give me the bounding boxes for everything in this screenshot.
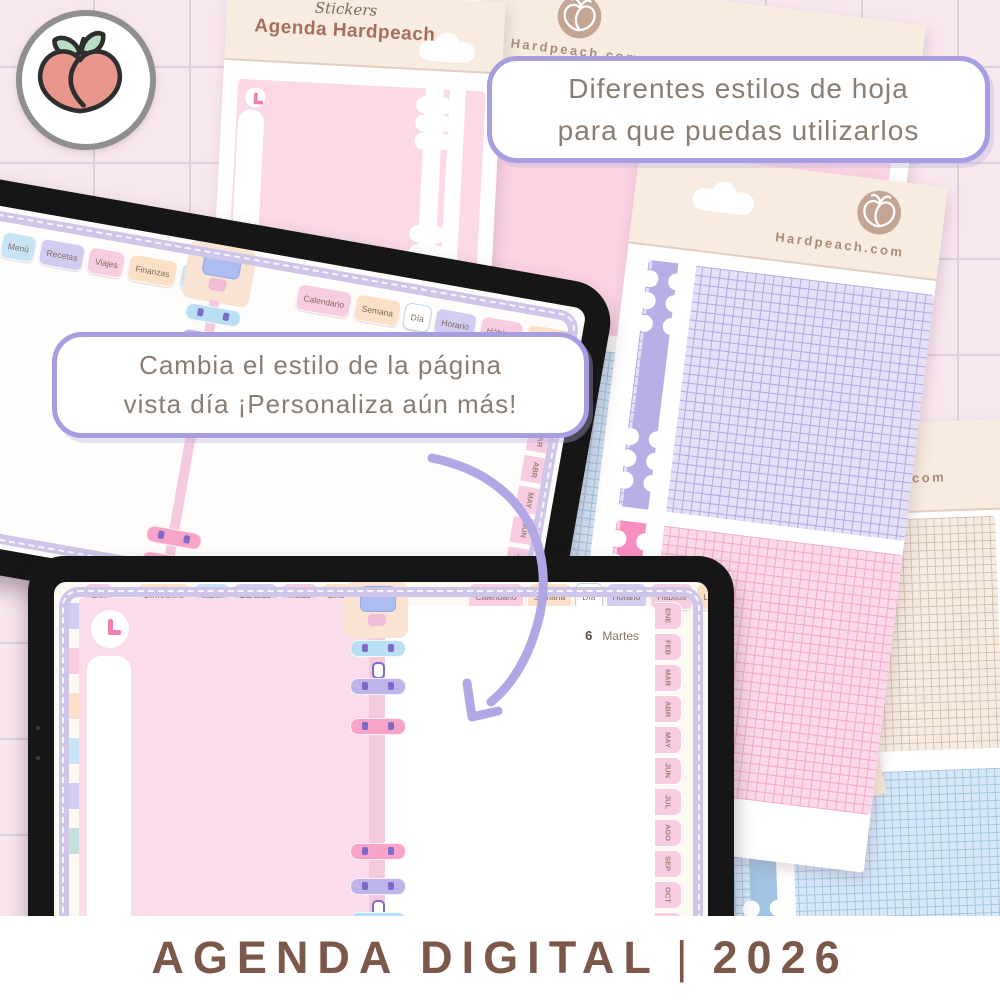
month-tab-label: JUL (664, 795, 673, 809)
month-tab-label: JUN (519, 523, 530, 539)
day-header: 6 Martes (585, 628, 639, 643)
month-tab[interactable]: ABR (520, 454, 551, 486)
tab-label: Día (410, 311, 425, 323)
binder-hole (409, 225, 427, 243)
binder-hole (618, 449, 637, 468)
binder-hole (640, 269, 659, 288)
side-button (36, 756, 40, 760)
title-banner: AGENDA DIGITAL | 2026 (0, 916, 1000, 1000)
month-tab[interactable]: JUN (509, 515, 540, 547)
month-tab[interactable]: FEB (655, 633, 682, 661)
planner-right-page: 6 Martes (383, 606, 655, 960)
tab-label: Horario (613, 592, 641, 602)
planner-tab[interactable]: Semana (353, 293, 403, 328)
clock-icon (91, 610, 129, 648)
callout-line: Cambia el estilo de la página (139, 346, 502, 385)
month-tab[interactable]: OCT (655, 881, 682, 909)
planner-left-page (79, 598, 377, 960)
month-tab-label: JUN (664, 763, 673, 778)
peach-icon (22, 16, 138, 132)
planner-tab[interactable]: Calendario (294, 283, 353, 319)
month-tab-label: MAY (664, 732, 673, 748)
planner-tab[interactable]: Viajes (86, 246, 127, 279)
callout-line: para que puedas utilizarlos (558, 110, 920, 152)
hardpeach-badge-icon (854, 187, 905, 238)
site-url: Hardpeach.com (720, 223, 960, 267)
tab-label: Menú (7, 240, 30, 254)
tab-label: Calendario (303, 293, 345, 310)
banner-title: AGENDA DIGITAL (151, 932, 659, 984)
planner-tab[interactable]: Día (402, 302, 434, 333)
clock-icon (245, 87, 266, 108)
callout-customize: Cambia el estilo de la página vista día … (52, 332, 589, 438)
planner-tab[interactable]: Limpieza (696, 583, 708, 610)
binder-hole (415, 114, 433, 132)
binder-hole (616, 471, 635, 490)
tablet2-screen: Año PropósitosMenúRecetasViajesFinanzasN… (54, 582, 708, 960)
tab-label: Horario (441, 317, 470, 332)
promo-collage: Hardpeach.com Stickers Agenda Hardpeach … (0, 0, 1000, 1000)
hang-hole (691, 187, 755, 216)
month-tab[interactable]: JUL (655, 788, 682, 816)
day-name: Martes (602, 629, 639, 643)
planner-tab[interactable]: Recetas (38, 238, 87, 272)
month-tab[interactable]: ABR (655, 695, 682, 723)
binder-ring (350, 678, 406, 695)
binder-ring (350, 843, 406, 860)
banner-year: 2026 (713, 932, 849, 984)
planner-tab[interactable]: Finanzas (126, 253, 178, 288)
tab-label: Semana (534, 592, 566, 602)
tab-label: Viajes (94, 256, 118, 270)
peach-logo (16, 10, 156, 150)
banner-separator: | (676, 932, 697, 984)
month-tab[interactable]: MAR (655, 664, 682, 692)
month-tab-label: ENE (664, 608, 673, 623)
tab-label: Día (582, 592, 595, 602)
day-number: 6 (585, 628, 592, 643)
month-tab[interactable]: MAY (655, 726, 682, 754)
hang-hole (418, 40, 475, 63)
spine-rivet (372, 662, 385, 679)
month-tab-label: SEP (664, 856, 673, 871)
binder-hole (742, 900, 760, 918)
binder-ring (350, 718, 406, 735)
tab-label: Semana (361, 303, 394, 318)
tab-label: Calendario (475, 592, 516, 602)
month-tab-label: OCT (664, 887, 673, 903)
callout-line: Diferentes estilos de hoja (568, 68, 908, 110)
binder-ring (350, 878, 406, 895)
month-tab[interactable]: AGO (655, 819, 682, 847)
binder-clip-base (368, 614, 386, 626)
month-tab[interactable]: MAY (515, 484, 546, 516)
binder-hole (416, 96, 434, 114)
purple-grid-page (618, 260, 934, 541)
callout-styles: Diferentes estilos de hoja para que pued… (487, 56, 990, 163)
month-tab-label: ABR (664, 701, 673, 717)
hardpeach-badge-icon (554, 0, 605, 42)
sheet-header: Stickers Agenda Hardpeach (224, 0, 505, 74)
month-tab[interactable]: ENE (655, 602, 682, 630)
tab-label: Limpieza (703, 592, 708, 602)
side-button (36, 726, 40, 730)
planner-tab[interactable]: Menú (0, 231, 38, 264)
tab-label: Recetas (46, 247, 78, 262)
callout-line: vista día ¡Personaliza aún más! (124, 385, 518, 424)
month-tab-label: MAY (524, 492, 536, 509)
month-tab-label: AGO (664, 824, 673, 841)
side-label-slot (87, 656, 131, 948)
month-tab[interactable]: SEP (655, 850, 682, 878)
month-tab[interactable]: JUN (655, 757, 682, 785)
tab-label: Hábitos (657, 592, 686, 602)
month-tab-label: FEB (664, 640, 673, 655)
tablet2-month-tabs: ENEFEBMARABRMAYJUNJULAGOSEPOCTNOVDIC (655, 602, 682, 960)
binder-hole (608, 530, 627, 549)
binder-hole (638, 291, 657, 310)
binder-clip[interactable] (360, 586, 396, 612)
binder-hole (414, 132, 432, 150)
binder-ring (350, 640, 406, 657)
tab-label: Finanzas (135, 263, 171, 279)
binder-hole (621, 427, 640, 446)
binder-hole (635, 313, 654, 332)
month-tab-label: ABR (529, 461, 541, 479)
month-tab-label: MAR (664, 669, 673, 686)
